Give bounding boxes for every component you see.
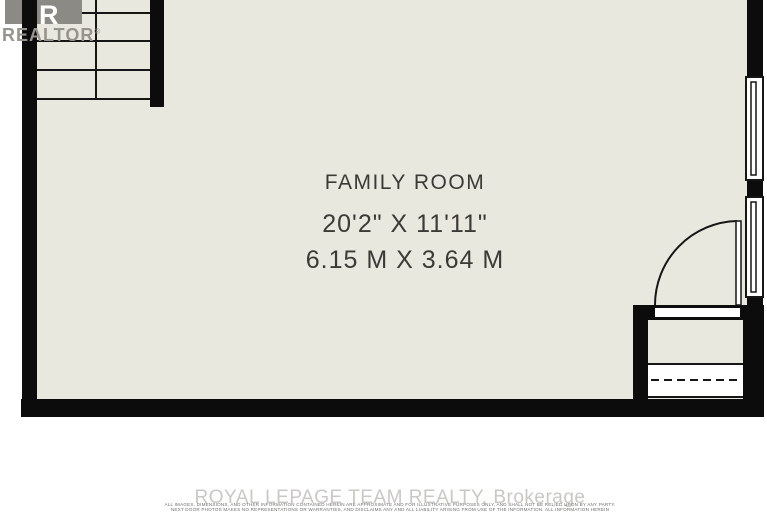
staircase-bottom-right xyxy=(648,320,743,397)
door-opening xyxy=(655,308,740,317)
realtor-watermark-label: REALTOR xyxy=(2,25,94,45)
registered-trademark-symbol: ® xyxy=(94,27,101,36)
disclaimer-text: ALL IMAGES, DIMENSIONS, AND OTHER INFORM… xyxy=(13,502,767,513)
floorplan-page: { "room": { "name": "FAMILY ROOM", "dime… xyxy=(0,0,767,511)
stair-landing xyxy=(648,320,743,364)
left-wall xyxy=(22,0,37,417)
stairwell-right-wall-bottom xyxy=(743,305,764,417)
window-upper-pane xyxy=(751,82,756,175)
room-name-label: FAMILY ROOM xyxy=(43,171,767,195)
stairwell-left-wall-bottom xyxy=(633,305,648,417)
realtor-watermark: REALTOR® xyxy=(2,25,101,46)
room-dimensions-imperial: 20'2" X 11'11" xyxy=(43,210,767,239)
room-label-group: FAMILY ROOM 20'2" X 11'11" 6.15 M X 3.64… xyxy=(43,171,767,275)
disclaimer-line-2: NEXT DOOR PHOTOS MAKES NO REPRESENTATION… xyxy=(13,507,767,512)
bottom-wall xyxy=(21,399,764,417)
room-dimensions-metric: 6.15 M X 3.64 M xyxy=(43,246,767,275)
stairwell-right-wall-top xyxy=(150,0,164,107)
